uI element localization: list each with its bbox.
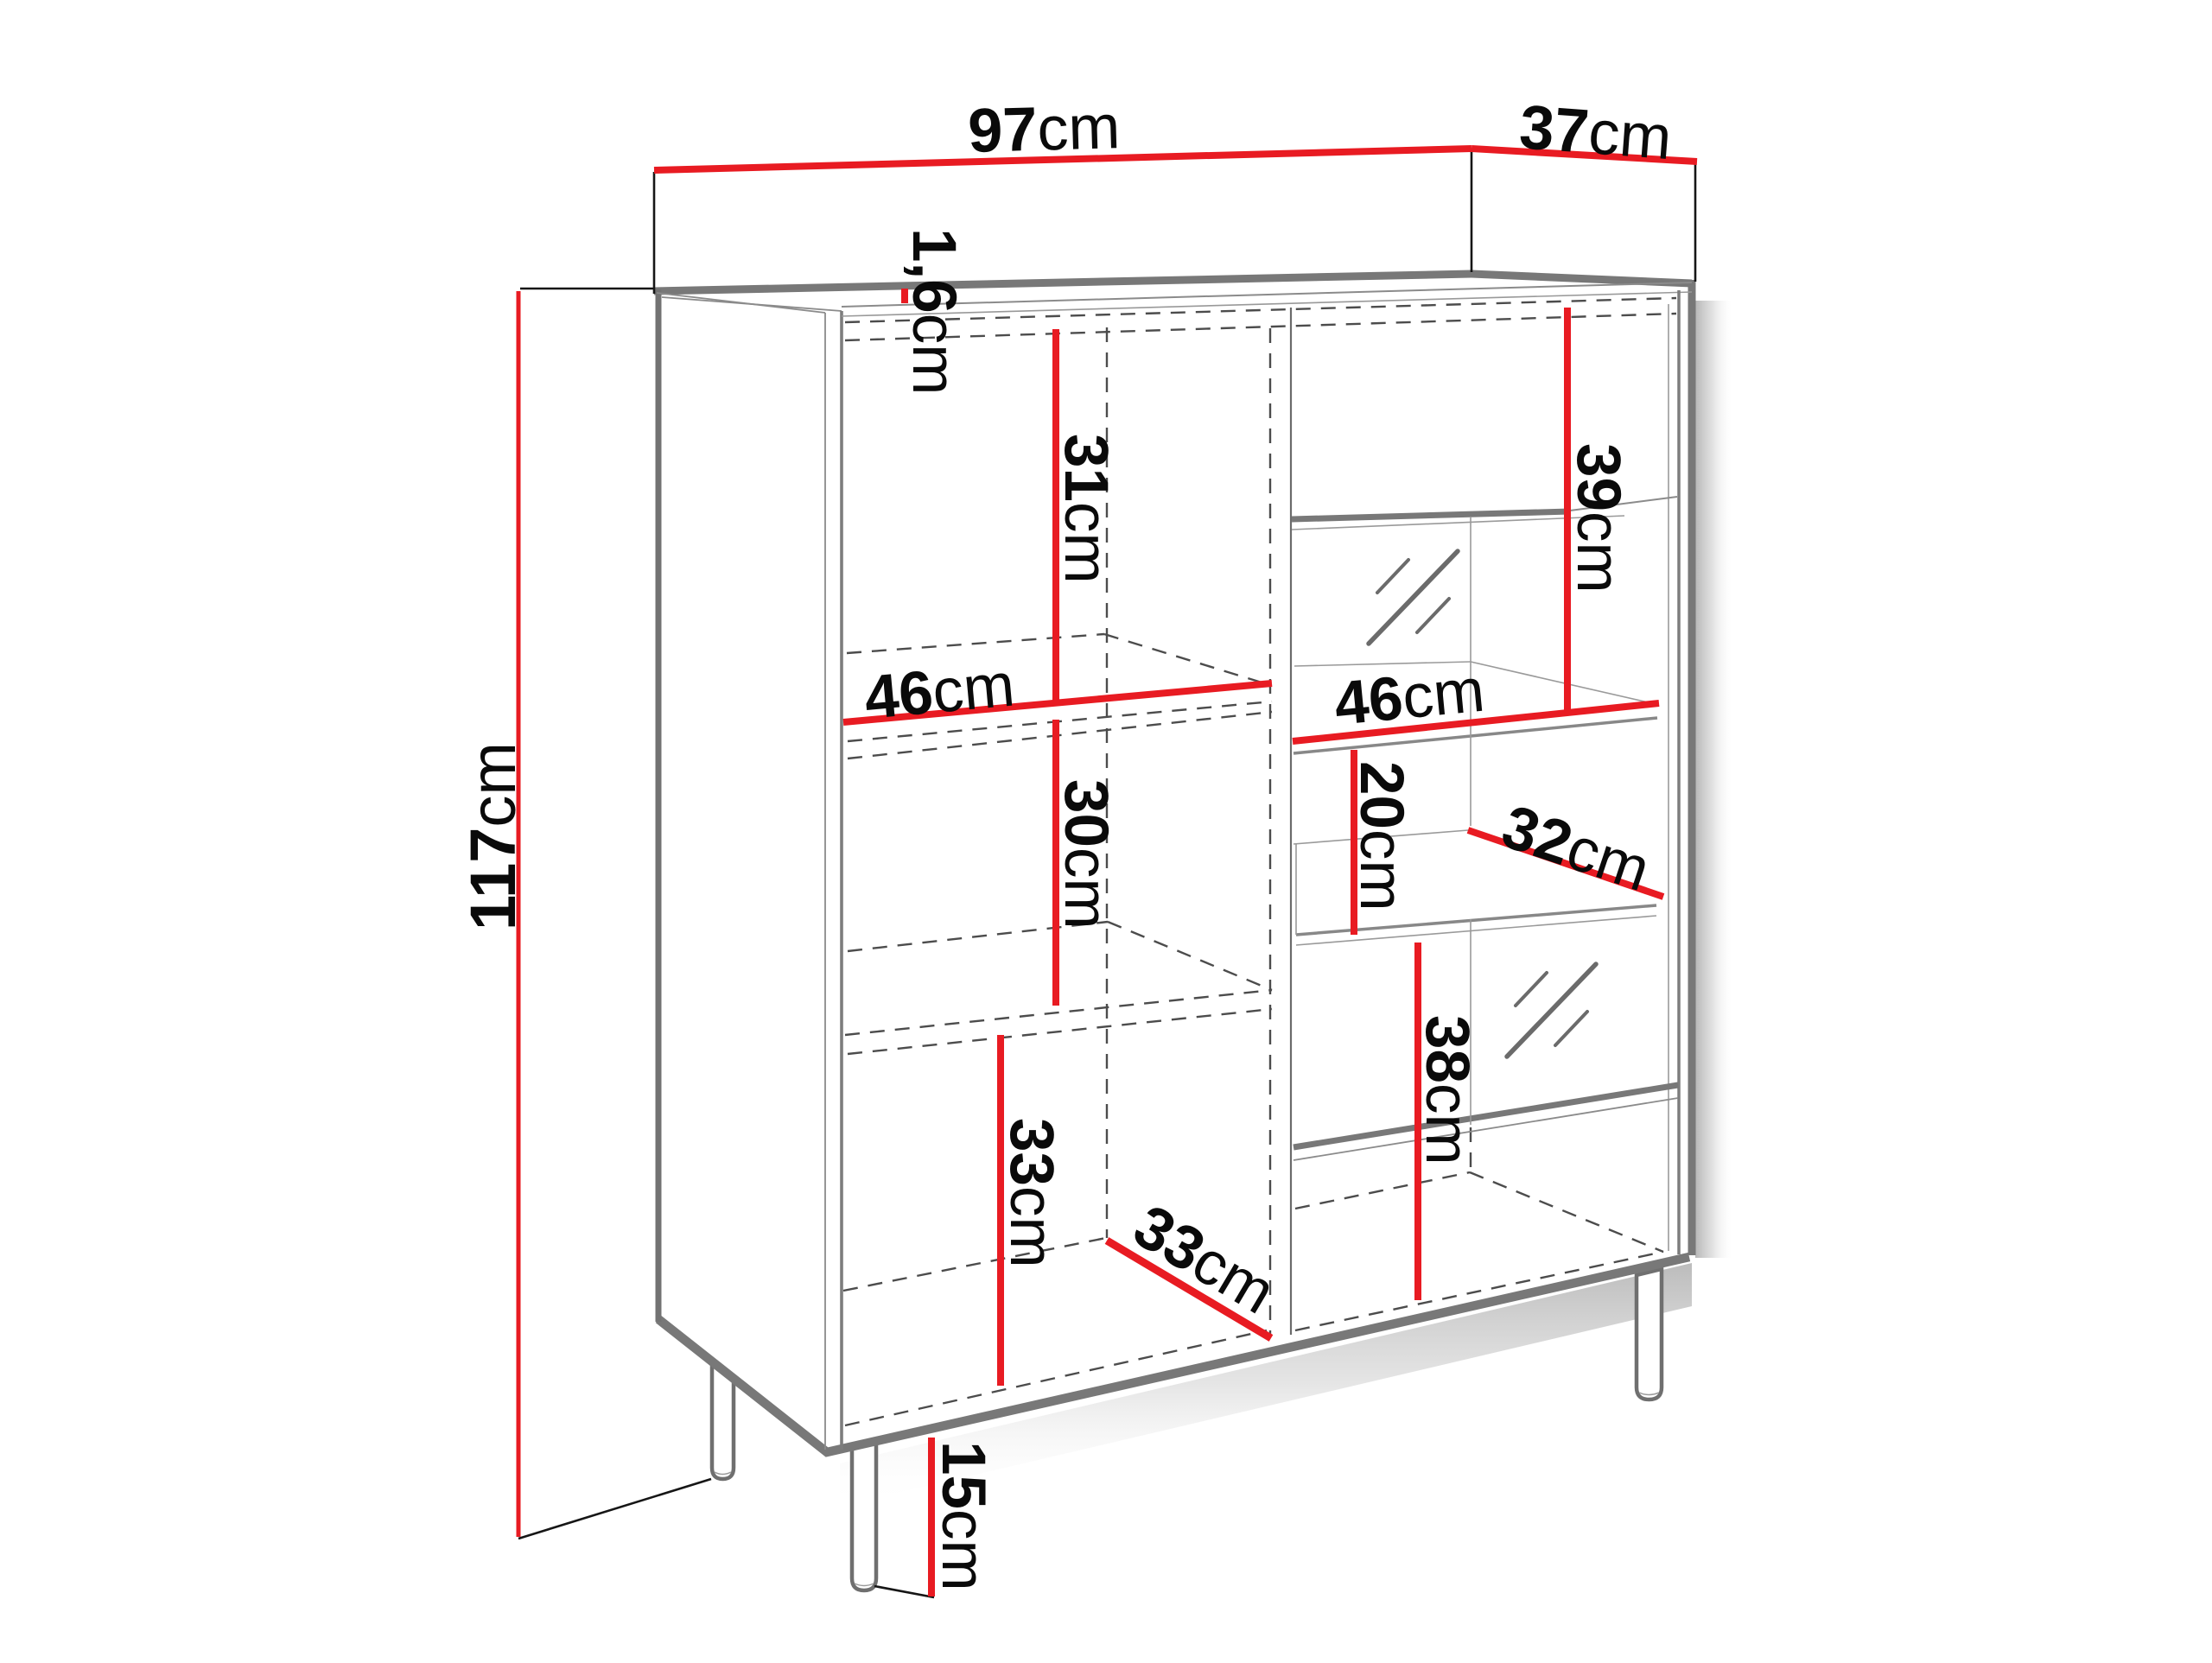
svg-text:20cm: 20cm (1347, 761, 1415, 911)
svg-text:46cm: 46cm (861, 651, 1017, 733)
svg-text:1,6cm: 1,6cm (899, 228, 968, 395)
svg-text:39cm: 39cm (1564, 443, 1632, 593)
svg-text:33cm: 33cm (997, 1118, 1065, 1268)
svg-text:97cm: 97cm (967, 92, 1121, 166)
svg-text:38cm: 38cm (1413, 1015, 1481, 1165)
svg-text:46cm: 46cm (1332, 657, 1487, 739)
svg-text:30cm: 30cm (1052, 779, 1120, 930)
svg-text:117cm: 117cm (457, 742, 529, 930)
svg-text:37cm: 37cm (1517, 92, 1675, 173)
svg-text:31cm: 31cm (1052, 434, 1120, 584)
svg-text:15cm: 15cm (929, 1441, 997, 1591)
